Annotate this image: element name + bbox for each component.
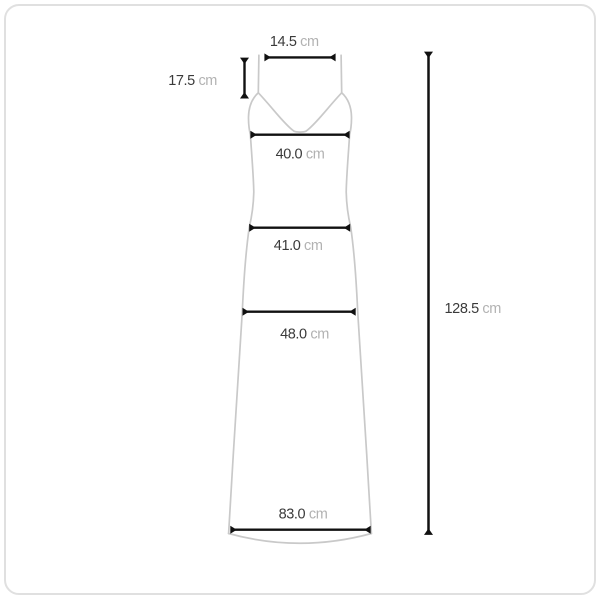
svg-text:40.0 cm: 40.0 cm: [276, 147, 325, 163]
svg-text:14.5 cm: 14.5 cm: [270, 34, 319, 50]
svg-text:41.0 cm: 41.0 cm: [274, 238, 323, 254]
svg-text:83.0 cm: 83.0 cm: [279, 507, 328, 523]
svg-text:17.5 cm: 17.5 cm: [168, 73, 217, 89]
svg-text:128.5 cm: 128.5 cm: [445, 301, 502, 317]
svg-text:48.0 cm: 48.0 cm: [280, 327, 329, 343]
